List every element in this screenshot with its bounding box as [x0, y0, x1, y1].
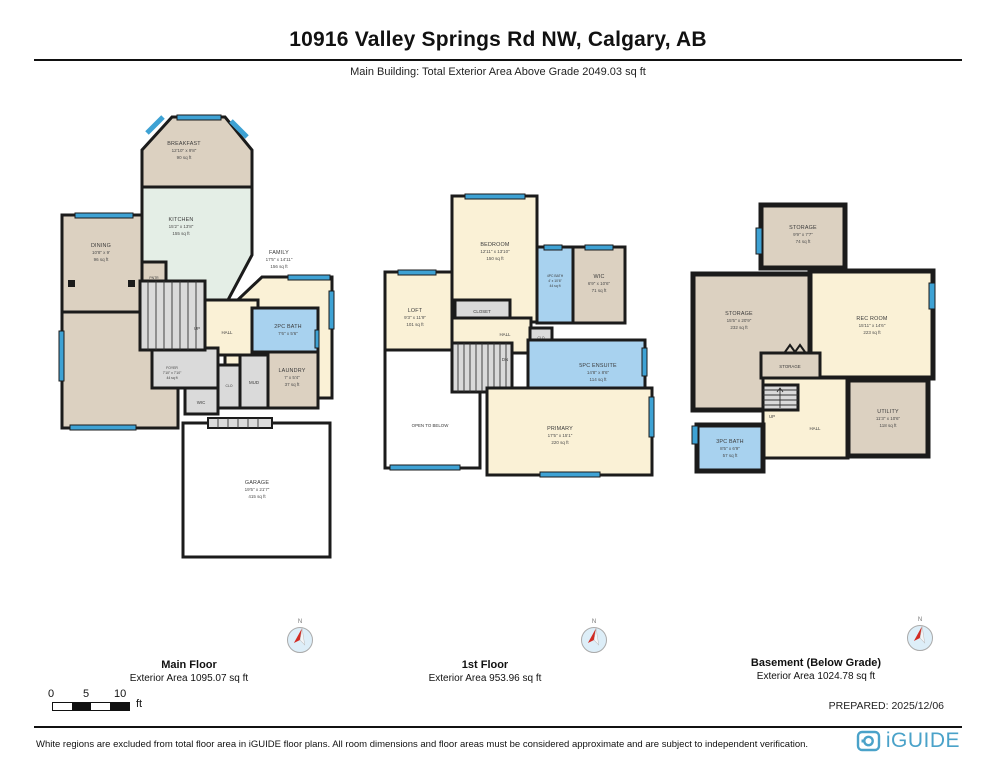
- compass-1st: N: [576, 615, 612, 657]
- svg-text:LOFT: LOFT: [408, 308, 423, 314]
- floorplan-main-floor: BREAKFAST 12'10" x 9'8" 90 sq ft KITCHEN…: [55, 106, 345, 568]
- svg-text:57 sq ft: 57 sq ft: [723, 453, 739, 458]
- stairs-dn: DN: [452, 343, 512, 392]
- room-foyer: FOYER 7'10" x 7'10" 44 sq ft: [152, 348, 218, 388]
- iguide-camera-icon: [856, 729, 882, 753]
- svg-text:12'11" x 13'10": 12'11" x 13'10": [480, 249, 510, 254]
- svg-text:11'3" x 10'6": 11'3" x 10'6": [876, 416, 901, 421]
- floorplan-basement: STORAGE 9'9" x 7'7" 74 sq ft STORAGE 15'…: [683, 196, 943, 481]
- footer-divider: [34, 726, 962, 728]
- room-wic: WIC: [185, 388, 218, 414]
- room-clo: CLO: [218, 365, 240, 408]
- svg-text:UP: UP: [769, 414, 775, 419]
- svg-text:17'5" x 14'11": 17'5" x 14'11": [266, 257, 293, 262]
- svg-text:DINING: DINING: [91, 243, 111, 249]
- svg-text:118 sq ft: 118 sq ft: [880, 423, 898, 428]
- room-storage-top: STORAGE 9'9" x 7'7" 74 sq ft: [761, 205, 845, 268]
- svg-text:90 sq ft: 90 sq ft: [177, 155, 193, 160]
- page-subtitle: Main Building: Total Exterior Area Above…: [0, 66, 996, 78]
- svg-text:37 sq ft: 37 sq ft: [285, 382, 301, 387]
- svg-text:WIC: WIC: [593, 274, 604, 280]
- svg-text:FOYER: FOYER: [166, 366, 178, 370]
- column-post: [128, 280, 135, 287]
- prepared-date: PREPARED: 2025/12/06: [829, 700, 944, 712]
- compass-main: N: [282, 615, 318, 657]
- room-2pc-bath: 2PC BATH 7'6" x 5'6": [252, 308, 318, 352]
- svg-text:CLO: CLO: [226, 384, 233, 388]
- svg-text:STORAGE: STORAGE: [725, 311, 753, 317]
- svg-text:GARAGE: GARAGE: [245, 480, 269, 486]
- svg-text:OPEN TO BELOW: OPEN TO BELOW: [412, 423, 450, 428]
- svg-text:MUD: MUD: [249, 380, 259, 385]
- floorplan-1st-floor: LOFT 9'3" x 11'9" 101 sq ft OPEN TO BELO…: [378, 192, 663, 484]
- compass-n-label: N: [298, 619, 302, 625]
- svg-text:7' x 5'4": 7' x 5'4": [284, 375, 300, 380]
- svg-text:15'11" x 14'6": 15'11" x 14'6": [859, 323, 886, 328]
- scale-tick-10: 10: [114, 688, 126, 700]
- room-utility: UTILITY 11'3" x 10'6" 118 sq ft: [848, 380, 928, 456]
- compass-n-label: N: [918, 617, 922, 623]
- svg-text:19'5" x 21'7": 19'5" x 21'7": [245, 487, 270, 492]
- page-title: 10916 Valley Springs Rd NW, Calgary, AB: [0, 28, 996, 52]
- svg-text:UTILITY: UTILITY: [877, 409, 899, 415]
- svg-text:4' x 10'6": 4' x 10'6": [548, 279, 562, 283]
- svg-text:114 sq ft: 114 sq ft: [590, 377, 608, 382]
- header-divider: [34, 59, 962, 61]
- svg-text:STORAGE: STORAGE: [789, 225, 817, 231]
- svg-text:7'6" x 5'6": 7'6" x 5'6": [278, 331, 298, 336]
- scale-tick-5: 5: [83, 688, 89, 700]
- svg-text:150 sq ft: 150 sq ft: [486, 256, 504, 261]
- room-3pc-bath: 3PC BATH 8'5" x 6'9" 57 sq ft: [697, 425, 763, 471]
- svg-text:PNTR: PNTR: [149, 276, 159, 280]
- room-dining: DINING 10'8" x 9' 96 sq ft: [62, 215, 142, 312]
- caption-basement: Basement (Below Grade) Exterior Area 102…: [706, 657, 926, 683]
- svg-text:156 sq ft: 156 sq ft: [270, 264, 288, 269]
- svg-text:14'8" x 8'6": 14'8" x 8'6": [587, 370, 610, 375]
- floor-area: Exterior Area 953.96 sq ft: [385, 673, 585, 686]
- room-loft: LOFT 9'3" x 11'9" 101 sq ft: [385, 272, 452, 350]
- svg-text:2PC BATH: 2PC BATH: [274, 324, 302, 330]
- svg-text:17'5" x 15'1": 17'5" x 15'1": [548, 433, 573, 438]
- svg-text:6'9" x 10'6": 6'9" x 10'6": [588, 281, 611, 286]
- room-rec: REC ROOM 15'11" x 14'6" 223 sq ft: [810, 271, 933, 378]
- svg-text:8'5" x 6'9": 8'5" x 6'9": [720, 446, 740, 451]
- room-laundry: LAUNDRY 7' x 5'4" 37 sq ft: [268, 352, 318, 408]
- room-primary: PRIMARY 17'5" x 15'1" 220 sq ft: [487, 388, 652, 475]
- scale-bar-segments: [52, 702, 130, 711]
- svg-text:LAUNDRY: LAUNDRY: [278, 368, 305, 374]
- svg-text:STORAGE: STORAGE: [779, 364, 800, 369]
- svg-text:WIC: WIC: [197, 400, 206, 405]
- svg-text:KITCHEN: KITCHEN: [168, 217, 193, 223]
- svg-text:CLOSET: CLOSET: [473, 309, 491, 314]
- svg-text:220 sq ft: 220 sq ft: [551, 440, 569, 445]
- svg-text:BEDROOM: BEDROOM: [480, 242, 510, 248]
- svg-text:PRIMARY: PRIMARY: [547, 426, 573, 432]
- svg-text:223 sq ft: 223 sq ft: [863, 330, 881, 335]
- svg-text:155 sq ft: 155 sq ft: [172, 231, 190, 236]
- scale-bar: 0 5 10 ft: [50, 688, 210, 714]
- scale-unit: ft: [136, 698, 142, 710]
- floor-name: 1st Floor: [385, 659, 585, 673]
- caption-1st-floor: 1st Floor Exterior Area 953.96 sq ft: [385, 659, 585, 685]
- svg-text:415 sq ft: 415 sq ft: [248, 494, 266, 499]
- svg-text:44 sq ft: 44 sq ft: [549, 284, 560, 288]
- svg-text:15'5" x 20'9": 15'5" x 20'9": [727, 318, 752, 323]
- floor-name: Main Floor: [89, 659, 289, 673]
- floor-name: Basement (Below Grade): [706, 657, 926, 671]
- floor-area: Exterior Area 1095.07 sq ft: [89, 673, 289, 686]
- svg-text:10'8" x 9': 10'8" x 9': [92, 250, 110, 255]
- scale-tick-0: 0: [48, 688, 54, 700]
- svg-text:96 sq ft: 96 sq ft: [94, 257, 110, 262]
- svg-text:3PC BATH: 3PC BATH: [716, 439, 744, 445]
- svg-text:9'9" x 7'7": 9'9" x 7'7": [793, 232, 813, 237]
- floor-area: Exterior Area 1024.78 sq ft: [706, 671, 926, 684]
- svg-text:101 sq ft: 101 sq ft: [406, 322, 424, 327]
- svg-text:74 sq ft: 74 sq ft: [796, 239, 812, 244]
- room-garage: GARAGE 19'5" x 21'7" 415 sq ft: [183, 418, 330, 557]
- svg-text:71 sq ft: 71 sq ft: [592, 288, 608, 293]
- room-ensuite: 5PC ENSUITE 14'8" x 8'6" 114 sq ft: [528, 340, 645, 390]
- svg-text:9'3" x 11'9": 9'3" x 11'9": [404, 315, 426, 320]
- svg-text:7'10" x 7'10": 7'10" x 7'10": [163, 371, 182, 375]
- compass-basement: N: [902, 613, 938, 655]
- svg-text:DN: DN: [502, 357, 508, 362]
- svg-text:HALL: HALL: [810, 426, 822, 431]
- compass-n-label: N: [592, 619, 596, 625]
- svg-text:15'2" x 13'8": 15'2" x 13'8": [169, 224, 194, 229]
- svg-text:BREAKFAST: BREAKFAST: [167, 141, 201, 147]
- svg-text:12'10" x 9'8": 12'10" x 9'8": [172, 148, 197, 153]
- caption-main-floor: Main Floor Exterior Area 1095.07 sq ft: [89, 659, 289, 685]
- svg-text:REC ROOM: REC ROOM: [856, 316, 888, 322]
- svg-text:232 sq ft: 232 sq ft: [730, 325, 748, 330]
- room-wic: WIC 6'9" x 10'6" 71 sq ft: [573, 247, 625, 323]
- svg-text:UP: UP: [194, 326, 200, 331]
- svg-text:5PC ENSUITE: 5PC ENSUITE: [579, 363, 617, 369]
- room-mud: MUD: [240, 355, 268, 408]
- column-post: [68, 280, 75, 287]
- iguide-logo-text: iGUIDE: [886, 729, 960, 753]
- svg-text:4PC BATH: 4PC BATH: [547, 274, 564, 278]
- disclaimer-text: White regions are excluded from total fl…: [36, 739, 836, 750]
- svg-text:HALL: HALL: [222, 330, 234, 335]
- room-storage-small: STORAGE: [761, 353, 820, 378]
- svg-text:FAMILY: FAMILY: [269, 250, 289, 256]
- iguide-logo: iGUIDE: [856, 729, 960, 753]
- svg-text:44 sq ft: 44 sq ft: [166, 376, 177, 380]
- room-4pc-bath: 4PC BATH 4' x 10'6" 44 sq ft: [537, 247, 573, 323]
- stairs-up: UP: [140, 281, 205, 350]
- svg-text:HALL: HALL: [500, 332, 512, 337]
